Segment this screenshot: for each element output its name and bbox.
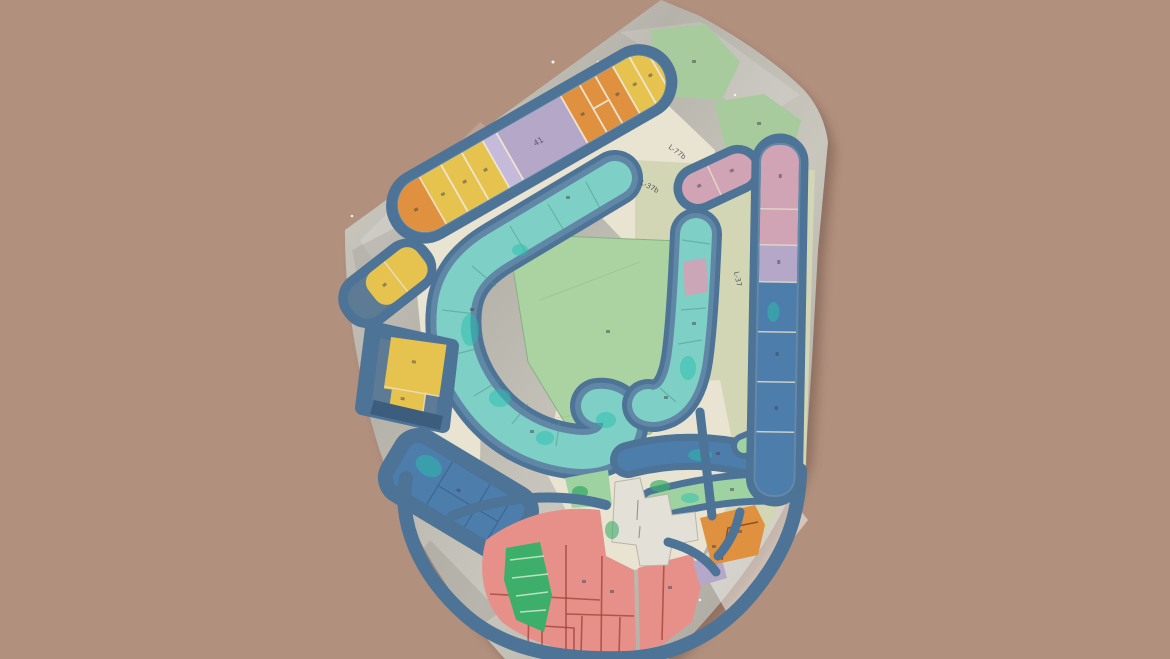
dust-speck bbox=[351, 215, 354, 218]
site-model-illustration: 41 bbox=[0, 0, 1170, 659]
yellow-lot bbox=[384, 337, 447, 396]
pink-lot bbox=[683, 258, 708, 296]
lot-mark bbox=[606, 330, 610, 333]
right-edge-capsule bbox=[746, 134, 808, 507]
left-compartment-2 bbox=[362, 328, 452, 430]
dust-speck bbox=[552, 61, 555, 64]
lot-mark bbox=[692, 60, 696, 63]
lot-mark bbox=[757, 122, 761, 125]
photo-of-site-model: 41 bbox=[0, 0, 1170, 659]
